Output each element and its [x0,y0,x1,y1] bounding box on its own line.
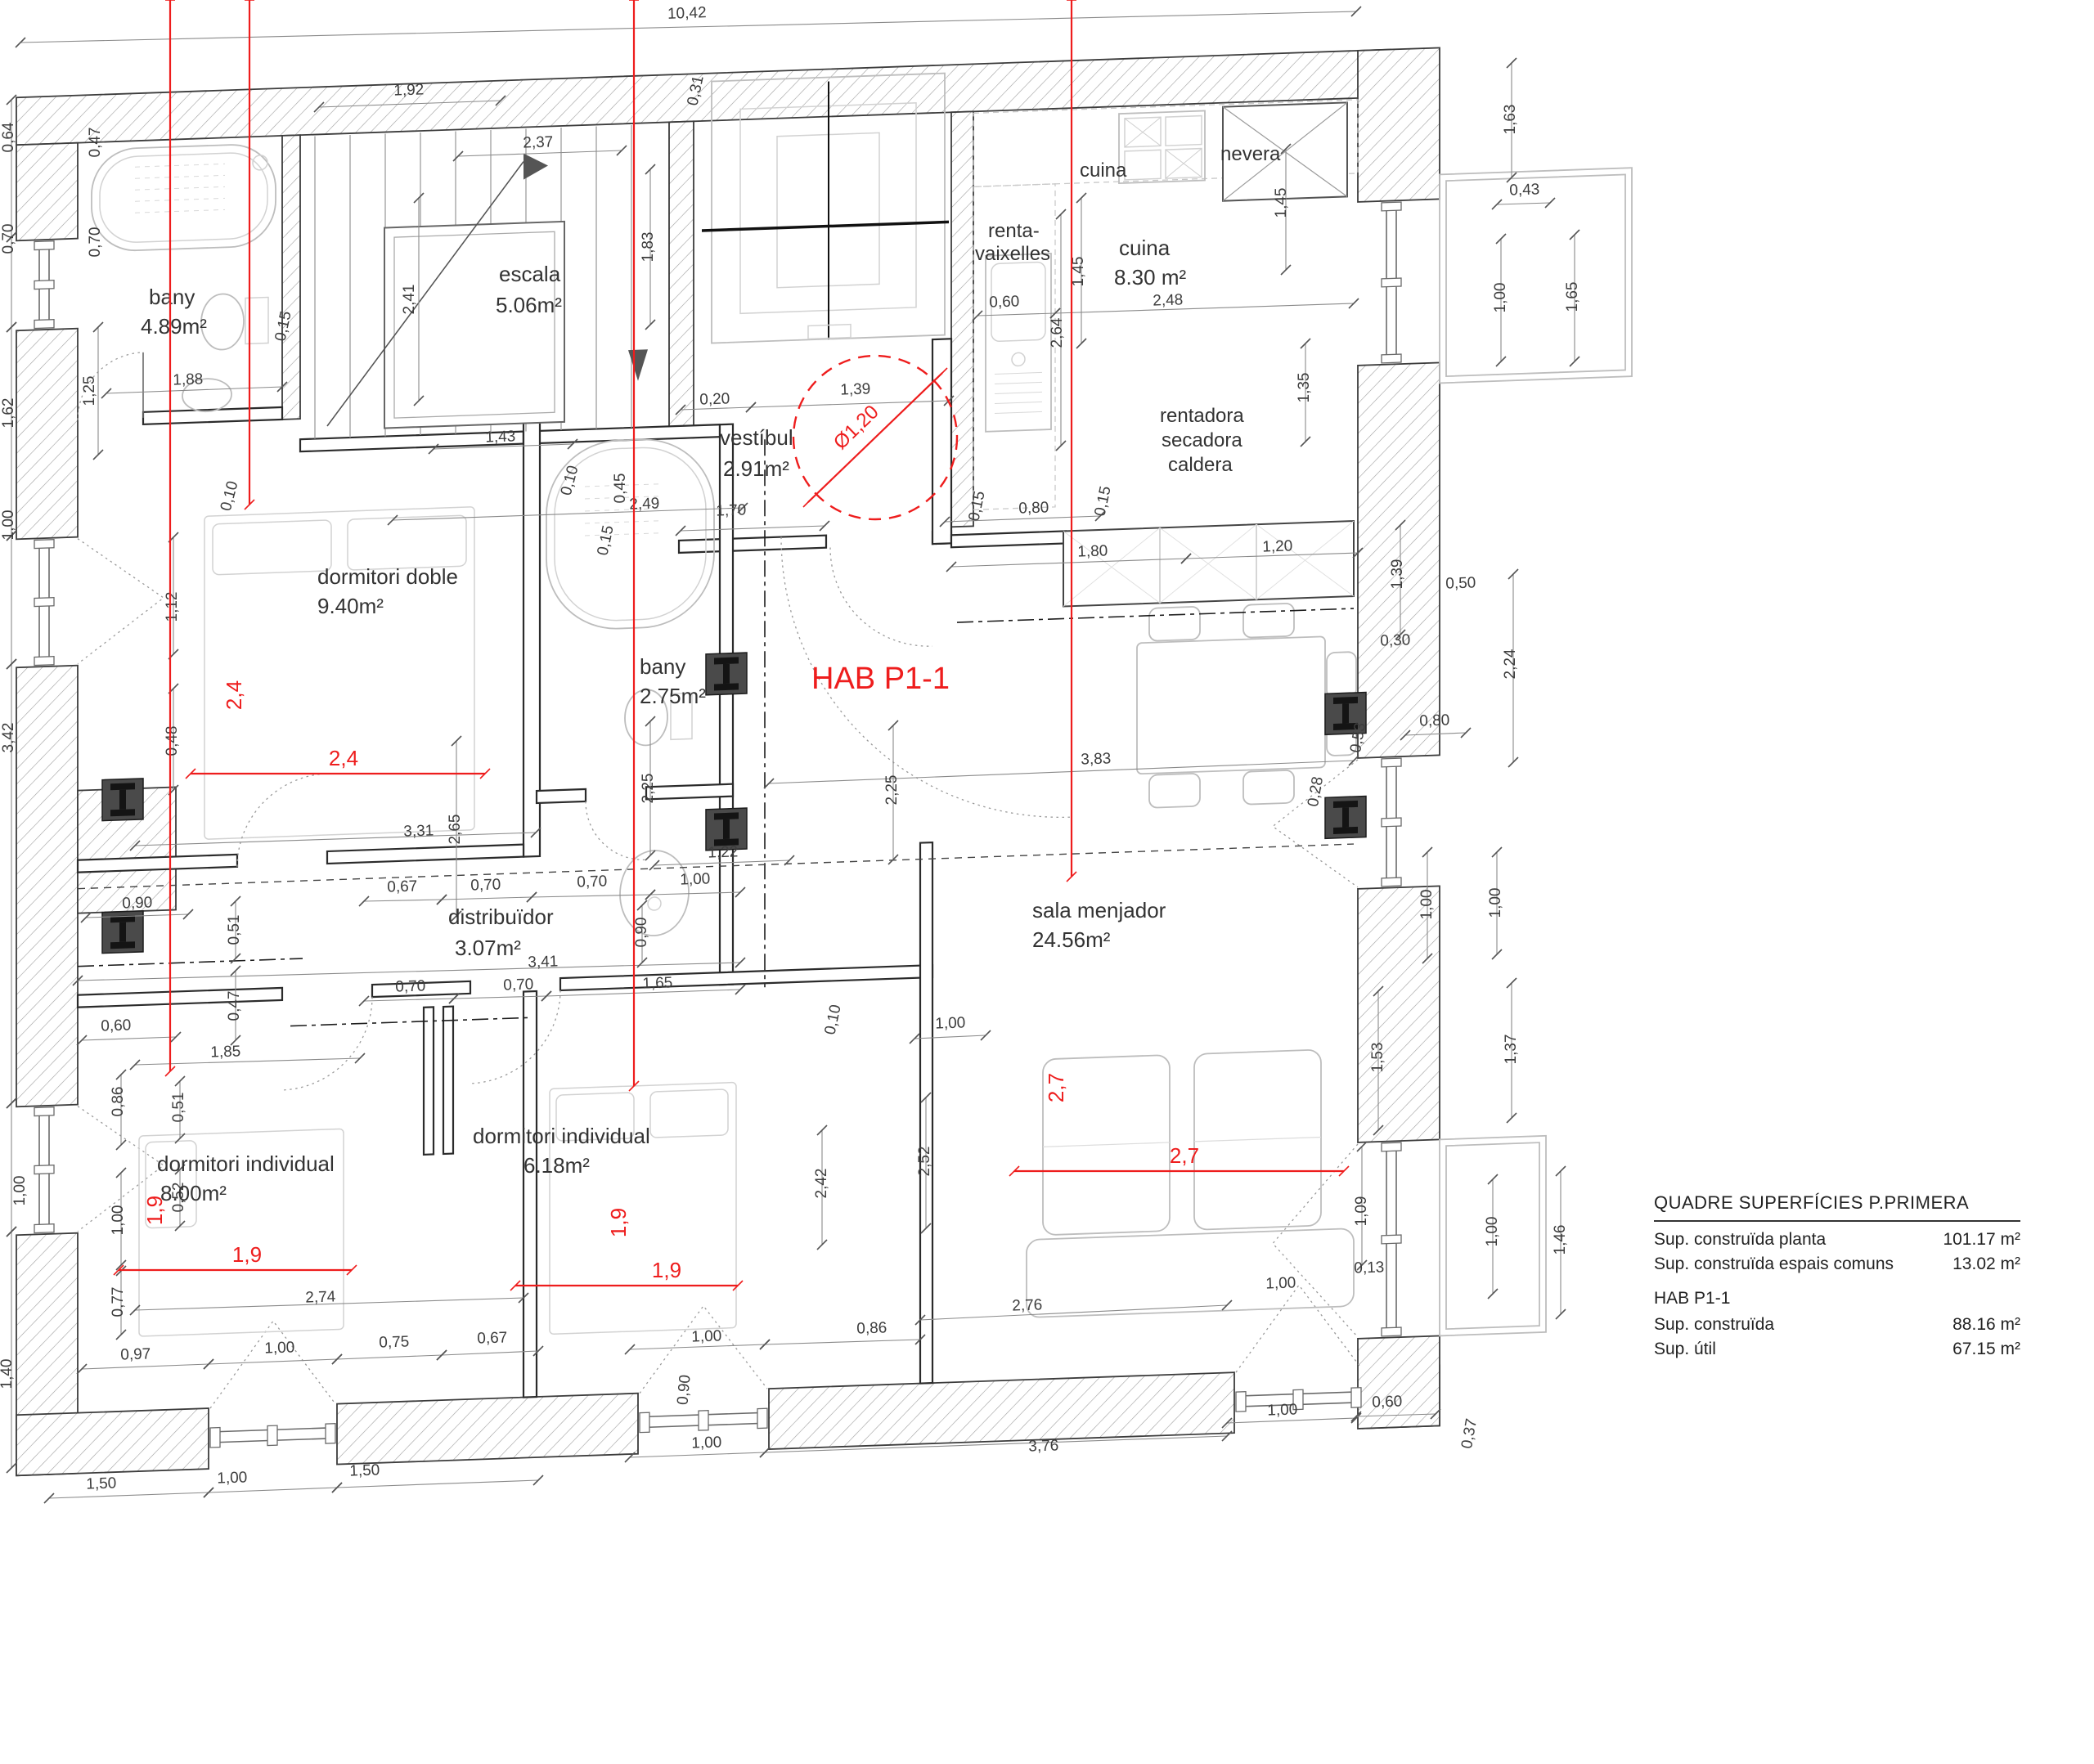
dimension-label: 0,86 [110,1087,127,1117]
dimension-label: 1,37 [1503,1035,1520,1065]
dining-set [1137,601,1356,808]
room-label: bany [640,654,685,679]
room-label: renta- [988,220,1040,242]
dimension-line [769,761,1354,783]
dimension-label: 1,63 [1502,105,1519,135]
dimension-line [337,1355,442,1359]
dimension-label: 10,42 [667,4,707,23]
surface-table-subtitle: HAB P1-1 [1654,1289,2020,1308]
dimension-label: 1,50 [349,1461,380,1479]
dimension-label: 0,37 [1458,1417,1481,1450]
dimension-label: 1,00 [1487,888,1504,918]
column-flange [1333,827,1358,834]
dimension-label: 2,76 [1012,1296,1043,1314]
dimension-label: 1,00 [935,1014,966,1032]
dimension-label: 1,00 [0,510,17,541]
dim-tick [803,497,813,507]
turning-circle-diameter [808,373,942,502]
dimension-label: 0,90 [674,1374,694,1406]
dimension-label: 0,70 [395,977,426,995]
dimension-label: 0,60 [101,1017,132,1035]
dimension-label: 1,80 [1077,542,1108,560]
dimension-label: 1,53 [1369,1043,1386,1073]
dimension-label: 1,00 [680,870,711,888]
room-label: escala [499,262,561,286]
dimension-label: 1,85 [210,1043,241,1061]
stove [1119,110,1205,183]
dimension-label: 1,20 [1262,537,1293,555]
room-label: nevera [1220,143,1281,165]
dimension-line [49,1492,209,1498]
dimension-line [977,313,1055,316]
dimension-line [337,1480,538,1488]
room-label: bany [149,285,195,309]
dimension-label: 1,83 [640,232,657,263]
room-label: 3.07m² [455,936,521,960]
dimension-label: 1,62 [0,398,17,429]
window-left-2 [34,536,164,666]
dimension-label: 0,47 [87,128,104,158]
windows [34,168,1632,1453]
dimension-label: 1,00 [1418,890,1436,920]
dimension-label: 0,43 [1509,181,1540,199]
room-label: vestíbul [720,425,793,450]
dimension-label: 1,00 [110,1205,127,1236]
dimension-line [532,895,650,897]
dimension-label: 2,42 [813,1169,830,1199]
dimension-label: 1,39 [840,380,871,398]
room-label: 4.89m² [141,314,207,339]
dimension-label: 1,00 [217,1469,248,1487]
room-label: 2.75m² [640,684,706,708]
dimension-label: 0,67 [477,1329,508,1347]
dimension-line [442,897,532,900]
column-flange [1333,801,1358,808]
room-label: secadora [1162,429,1242,451]
surface-row-label: Sup. construïda [1654,1315,1774,1335]
stair-up-arrow [523,153,548,180]
surface-table: QUADRE SUPERFÍCIES P.PRIMERA Sup. constr… [1654,1192,2020,1364]
room-label: sala menjador [1032,898,1166,922]
dimension-label: 0,60 [1372,1393,1403,1411]
dimension-label: 1,00 [11,1176,29,1206]
dimension-label: 1,00 [1265,1274,1296,1292]
dimension-line [681,526,825,531]
dimension-label: 1,43 [485,428,516,446]
column-flange [110,809,135,816]
dimension-line [82,1037,176,1040]
dimension-label: 2,65 [447,815,464,845]
room-label: 8.00m² [160,1181,227,1205]
dimension-label: 0,90 [633,918,650,948]
dimension-label: 1,35 [1296,373,1313,403]
min-area-hlabel: 1,9 [232,1242,262,1267]
dimension-label: 0,47 [226,991,243,1021]
dimension-label: 0,50 [1445,574,1476,592]
dimension-label: 0,51 [170,1093,187,1123]
dimension-label: 3,83 [1081,750,1112,768]
room-label: 9.40m² [317,594,384,618]
dimension-label: 0,70 [87,227,104,258]
staircase [315,124,648,438]
min-area-hlabel: 1,9 [652,1258,681,1282]
dimension-line [393,508,743,520]
dimension-line [1497,203,1550,204]
dimension-label: 3,76 [1028,1437,1059,1455]
surface-table-rows-unit: Sup. construïda88.16 m²Sup. útil67.15 m² [1654,1315,2020,1359]
column-web [723,819,730,839]
column-web [119,922,126,942]
dimension-label: 1,45 [1070,257,1087,287]
dimension-label: 1,65 [1564,282,1581,312]
dimension-label: 1,40 [0,1359,16,1389]
dimension-line [751,401,949,407]
dimension-label: 3,31 [403,822,434,840]
room-label: 2.91m² [723,456,789,481]
dimension-line [364,900,442,901]
dimension-label: 0,80 [1018,499,1049,517]
dimension-label: 1,46 [1552,1225,1569,1255]
column-flange [1333,697,1358,704]
dimension-label: 1,00 [1484,1217,1501,1247]
dimension-label: 2,25 [640,774,657,804]
surface-table-row: Sup. construïda planta101.17 m² [1654,1230,2020,1250]
min-area-vlabel: 2,4 [222,680,246,710]
surface-table-row: Sup. construïda espais comuns13.02 m² [1654,1255,2020,1274]
dimension-label: 2,48 [1153,291,1184,309]
dimension-label: 1,88 [173,370,204,388]
dimension-label: 2,25 [883,775,901,806]
dimension-label: 0,77 [110,1287,127,1317]
surface-table-rule [1654,1220,2020,1222]
dimension-line [364,999,454,1001]
room-label: rentadora [1160,405,1244,427]
floor-plan-svg: 10,420,310,640,701,621,003,421,001,401,9… [0,0,2094,1764]
dimension-label: 0,70 [577,873,608,891]
dimension-label: 0,97 [120,1345,151,1363]
dimension-label: 2,24 [1502,649,1519,679]
dimension-label: 0,86 [856,1319,887,1337]
room-label: cuina [1119,236,1171,260]
room-label: 6.18m² [523,1153,590,1178]
dimension-label: 0,15 [1092,485,1115,518]
dimension-label: 0,70 [503,976,534,994]
dimension-label: 0,75 [379,1333,410,1351]
dimension-label: 1,39 [1389,559,1406,590]
steel-column [102,779,143,821]
dimension-line [209,1488,337,1492]
dimension-label: 1,00 [691,1327,722,1345]
column-flange [714,657,739,664]
dimension-label: 2,74 [305,1288,336,1306]
window-bottom-3 [1236,1283,1361,1412]
dimension-line [1055,303,1354,313]
sofa-set [1027,1048,1354,1317]
surface-row-label: Sup. construïda espais comuns [1654,1255,1894,1274]
column-flange [110,941,135,949]
dimension-line [765,1340,920,1344]
column-web [119,790,126,810]
dimension-label: 3,42 [0,723,17,753]
dimension-line [630,1452,765,1457]
dimension-label: 1,00 [1267,1401,1298,1419]
window-bottom-1 [210,1319,335,1448]
turning-circle-label: Ø1,20 [829,401,883,454]
surface-row-label: Sup. útil [1654,1340,1716,1359]
room-label: dormitori individual [157,1151,335,1176]
dimension-label: 0,10 [822,1003,845,1037]
dimension-label: 2,64 [1049,317,1066,348]
surface-row-label: Sup. construïda planta [1654,1230,1826,1250]
room-label: vaixelles [975,243,1050,265]
room-label: 8.30 m² [1114,265,1186,290]
min-area-vlabel: 1,9 [142,1196,167,1225]
column-flange [714,812,739,819]
dimension-label: 0,64 [0,122,17,152]
window-bottom-2 [640,1304,767,1432]
dimension-label: 0,20 [699,390,730,408]
surface-row-value: 13.02 m² [1952,1255,2020,1274]
room-label: dormitori doble [317,564,458,589]
room-label: 5.06m² [496,293,562,317]
room-label: 24.56m² [1032,927,1111,952]
surface-table-row: Sup. construïda88.16 m² [1654,1315,2020,1335]
window-right-3 [1273,1142,1401,1340]
column-web [1342,703,1349,723]
balcony-top-right [1440,168,1632,383]
dimension-label: 2,52 [916,1147,933,1177]
unit-label: HAB P1-1 [811,662,950,696]
dimension-line [1227,1418,1356,1423]
dimension-label: 0,51 [226,915,243,945]
dimension-label: 1,65 [642,974,673,992]
min-area-hlabel: 2,4 [329,746,358,770]
dimension-label: 0,10 [218,479,242,513]
dimension-line [135,1058,360,1065]
steel-column [706,653,747,695]
column-web [723,664,730,684]
dimension-label: 0,70 [470,876,501,894]
surface-table-rows-general: Sup. construïda planta101.17 m²Sup. cons… [1654,1230,2020,1274]
dimension-line [209,1359,337,1364]
surface-row-value: 88.16 m² [1952,1315,2020,1335]
steel-column [1325,797,1366,839]
min-area-vlabel: 2,7 [1044,1073,1068,1102]
dimension-label: 3,41 [528,953,559,971]
column-flange [110,783,135,790]
room-label: cuina [1080,159,1127,182]
dimension-label: 1,70 [716,501,747,519]
surface-table-row: Sup. útil67.15 m² [1654,1340,2020,1359]
surface-row-value: 67.15 m² [1952,1340,2020,1359]
laundry-closet [1063,521,1354,606]
dimension-label: 0,90 [122,894,153,912]
min-area-hlabel: 2,7 [1170,1143,1199,1168]
dimension-label: 1,00 [264,1339,295,1357]
dimension-line [458,150,622,156]
dimension-label: 0,10 [558,464,582,497]
dimension-label: 0,13 [1354,1259,1385,1277]
steel-columns [102,631,1366,954]
room-label: distribuïdor [448,904,554,929]
dimension-label: 0,60 [989,293,1020,311]
min-area-vlabel: 1,9 [606,1208,631,1237]
dimension-label: 0,80 [1419,711,1450,729]
dimension-label: 1,22 [708,843,739,861]
surface-row-value: 101.17 m² [1943,1230,2020,1250]
dimension-label: 1,25 [81,376,98,406]
window-left-1 [34,241,54,329]
dimension-label: 0,30 [1380,631,1411,649]
dimension-label: 1,45 [1273,188,1290,218]
dimension-label: 1,00 [691,1434,722,1452]
dishwasher-sink [986,254,1051,432]
dimension-label: 1,00 [1492,283,1509,313]
dimension-label: 1,50 [86,1474,117,1492]
dimension-label: 0,28 [1305,775,1327,808]
dimension-label: 2,37 [523,133,554,151]
dimension-label: 0,15 [595,524,618,558]
column-web [1342,807,1349,827]
room-label: caldera [1168,454,1233,476]
dimension-label: 1,12 [164,592,181,622]
floor-plan-sheet: 10,420,310,640,701,621,003,421,001,401,9… [0,0,2094,1764]
dimension-label: 1,09 [1353,1196,1370,1227]
dimension-label: 0,45 [612,474,629,504]
dimension-label: 0,70 [0,224,17,254]
dimension-line [82,1364,209,1369]
surface-table-title: QUADRE SUPERFÍCIES P.PRIMERA [1654,1192,2020,1214]
room-label: dormitori individual [473,1124,650,1148]
window-right-1 [1382,202,1401,363]
dimension-label: 1,92 [393,81,425,99]
dimension-label: 2,41 [401,285,418,315]
column-flange [714,683,739,690]
dimension-label: 0,67 [387,878,418,895]
dimension-label: 0,48 [164,726,181,756]
